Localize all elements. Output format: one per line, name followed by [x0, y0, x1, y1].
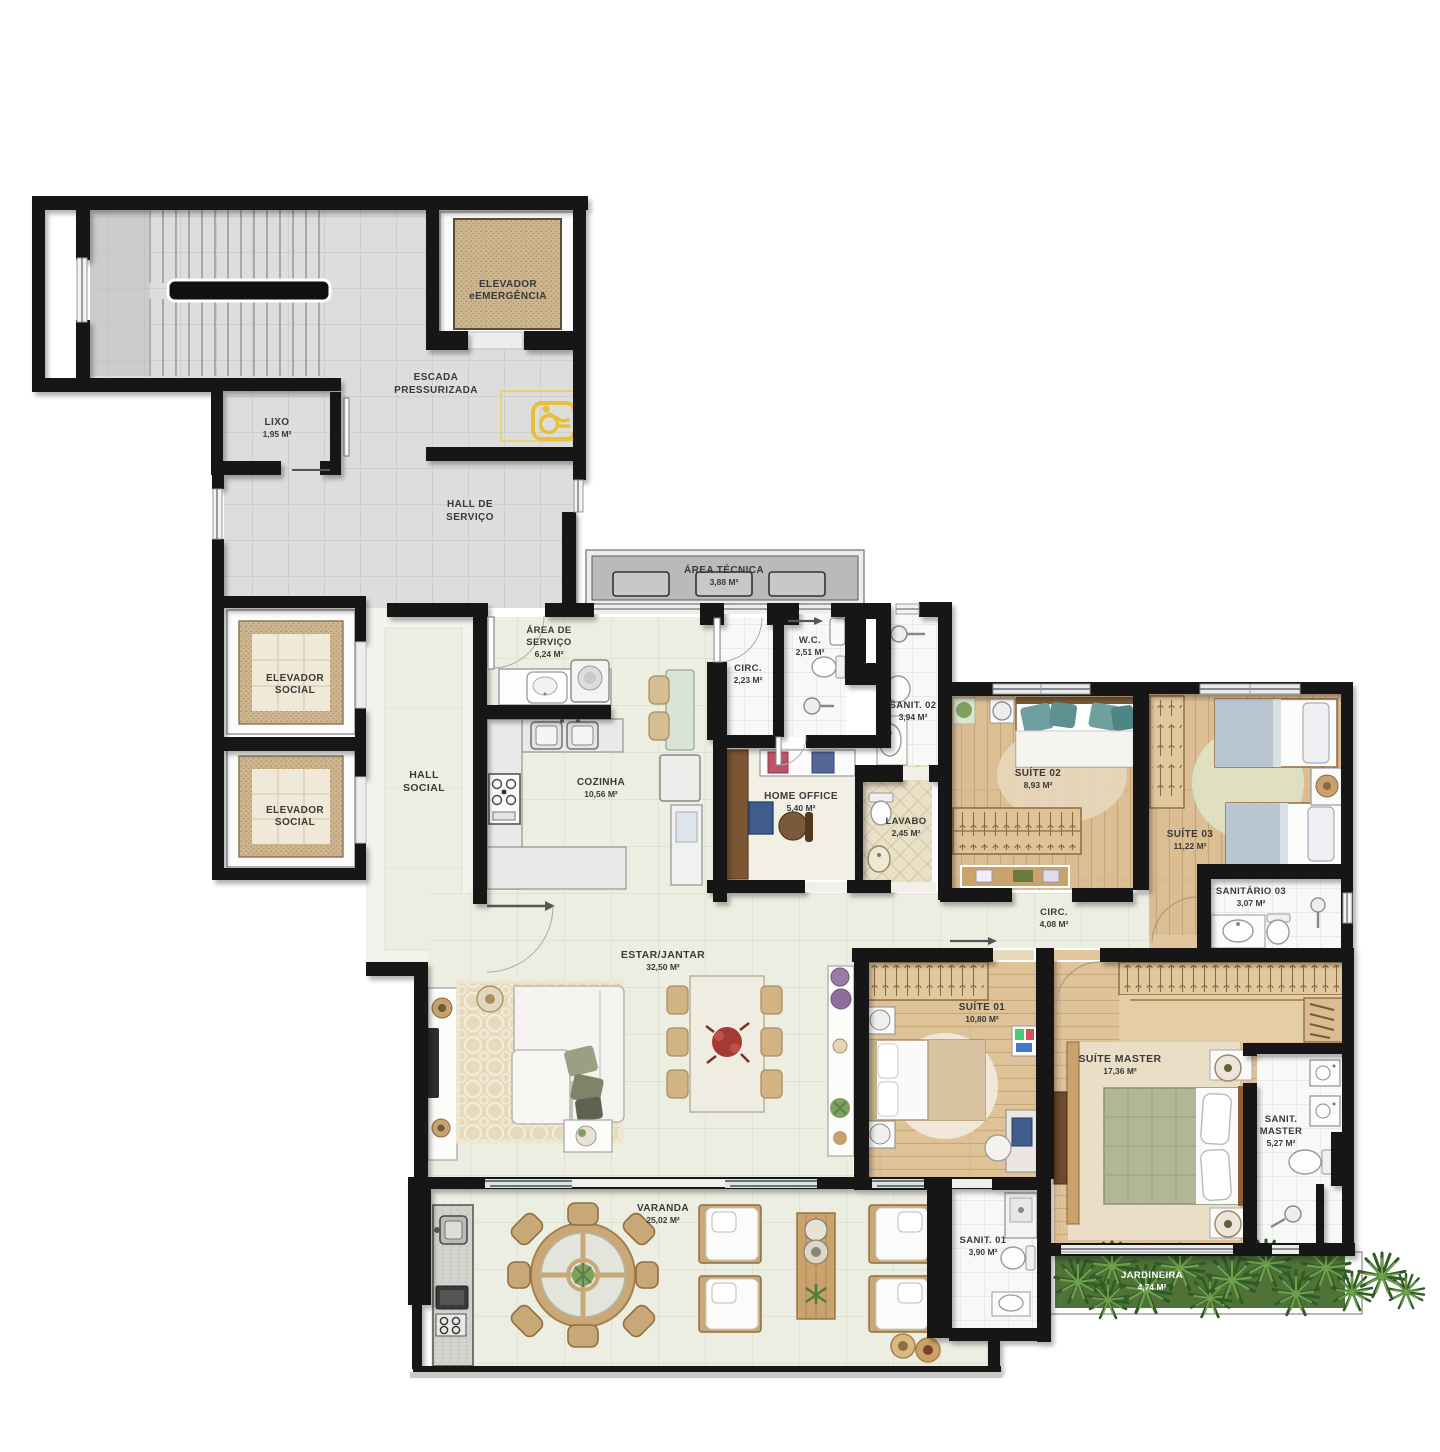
svg-text:SUÍTE MASTER: SUÍTE MASTER — [1079, 1052, 1162, 1065]
svg-text:11,22 M²: 11,22 M² — [1173, 841, 1206, 851]
svg-text:32,50 M²: 32,50 M² — [646, 962, 680, 972]
svg-text:SANIT. 02: SANIT. 02 — [890, 700, 937, 711]
svg-text:LIXO: LIXO — [265, 417, 290, 428]
svg-text:5,27 M²: 5,27 M² — [1267, 1138, 1296, 1148]
svg-text:SERVIÇO: SERVIÇO — [526, 637, 571, 648]
svg-text:HALL: HALL — [409, 769, 439, 781]
svg-text:ELEVADOR: ELEVADOR — [266, 673, 324, 684]
svg-text:10,80 M²: 10,80 M² — [965, 1014, 999, 1024]
svg-text:CIRC.: CIRC. — [734, 663, 762, 674]
svg-text:ÁREA TÉCNICA: ÁREA TÉCNICA — [684, 563, 764, 576]
svg-text:SOCIAL: SOCIAL — [403, 782, 445, 794]
svg-text:HOME OFFICE: HOME OFFICE — [764, 791, 838, 802]
svg-text:4,74 M²: 4,74 M² — [1138, 1282, 1167, 1292]
svg-text:3,07 M²: 3,07 M² — [1237, 898, 1266, 908]
svg-text:JARDINEIRA: JARDINEIRA — [1121, 1270, 1183, 1281]
svg-text:SERVIÇO: SERVIÇO — [446, 512, 494, 523]
svg-text:HALL DE: HALL DE — [447, 499, 493, 510]
svg-text:3,94 M²: 3,94 M² — [899, 712, 928, 722]
svg-text:W.C.: W.C. — [799, 635, 821, 646]
svg-text:ÁREA DE: ÁREA DE — [526, 625, 571, 636]
svg-text:ELEVADOR: ELEVADOR — [266, 805, 324, 816]
svg-text:MASTER: MASTER — [1260, 1126, 1303, 1137]
svg-text:3,90 M²: 3,90 M² — [969, 1247, 998, 1257]
svg-text:17,36 M²: 17,36 M² — [1103, 1066, 1137, 1076]
svg-text:eEMERGÊNCIA: eEMERGÊNCIA — [469, 289, 547, 302]
svg-text:2,45 M²: 2,45 M² — [892, 828, 921, 838]
svg-text:SOCIAL: SOCIAL — [275, 685, 315, 696]
svg-text:5,40 M²: 5,40 M² — [787, 803, 816, 813]
svg-text:COZINHA: COZINHA — [577, 777, 625, 788]
svg-text:SANITÁRIO 03: SANITÁRIO 03 — [1216, 886, 1286, 897]
svg-text:1,95 M²: 1,95 M² — [263, 429, 292, 439]
svg-text:SANIT.: SANIT. — [1265, 1114, 1298, 1125]
svg-text:10,56 M²: 10,56 M² — [584, 789, 618, 799]
svg-text:VARANDA: VARANDA — [637, 1203, 689, 1214]
svg-text:SUÍTE 03: SUÍTE 03 — [1167, 827, 1214, 840]
svg-text:SANIT. 01: SANIT. 01 — [960, 1235, 1007, 1246]
svg-text:SUÍTE 02: SUÍTE 02 — [1015, 766, 1062, 779]
svg-text:2,23 M²: 2,23 M² — [734, 675, 763, 685]
svg-text:LAVABO: LAVABO — [885, 816, 926, 827]
svg-text:SUÍTE 01: SUÍTE 01 — [959, 1000, 1006, 1013]
svg-text:ESTAR/JANTAR: ESTAR/JANTAR — [621, 949, 705, 961]
svg-text:ELEVADOR: ELEVADOR — [479, 279, 537, 290]
svg-text:6,24 M²: 6,24 M² — [535, 649, 564, 659]
svg-text:25,02 M²: 25,02 M² — [646, 1215, 680, 1225]
svg-text:PRESSURIZADA: PRESSURIZADA — [394, 385, 478, 396]
svg-text:3,88 M²: 3,88 M² — [710, 577, 739, 587]
svg-text:CIRC.: CIRC. — [1040, 907, 1068, 918]
svg-text:8,93 M²: 8,93 M² — [1024, 780, 1053, 790]
svg-text:4,08 M²: 4,08 M² — [1040, 919, 1069, 929]
svg-text:2,51 M²: 2,51 M² — [796, 647, 825, 657]
svg-text:ESCADA: ESCADA — [414, 372, 459, 383]
svg-text:SOCIAL: SOCIAL — [275, 817, 315, 828]
